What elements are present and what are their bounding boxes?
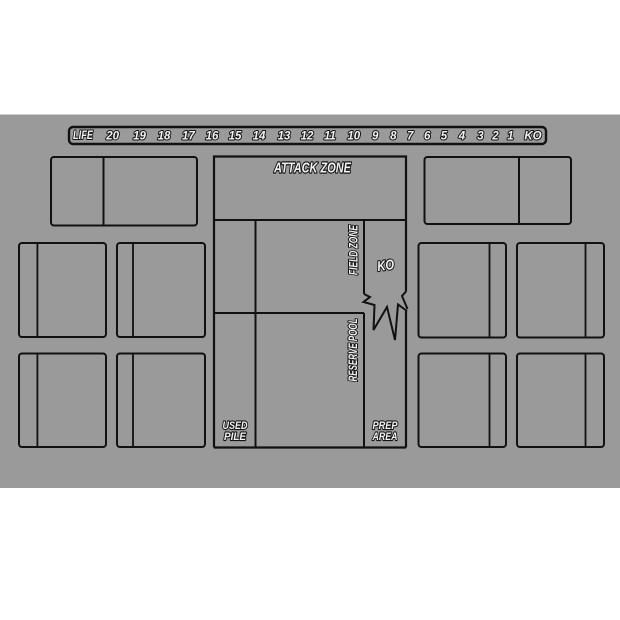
svg-text:8: 8 [390, 131, 397, 143]
svg-text:11: 11 [324, 131, 336, 143]
svg-text:13: 13 [278, 131, 291, 143]
svg-text:7: 7 [407, 131, 414, 143]
svg-text:19: 19 [133, 131, 146, 143]
svg-text:17: 17 [182, 131, 195, 143]
svg-text:9: 9 [372, 131, 379, 143]
svg-text:FIELD ZONE: FIELD ZONE [347, 224, 361, 275]
svg-text:LIFE: LIFE [73, 130, 93, 142]
svg-text:5: 5 [441, 131, 448, 143]
svg-text:14: 14 [253, 131, 266, 143]
svg-text:2: 2 [491, 131, 499, 143]
svg-text:16: 16 [206, 131, 219, 143]
svg-text:10: 10 [347, 131, 360, 143]
svg-text:ATTACK ZONE: ATTACK ZONE [273, 160, 351, 177]
svg-text:20: 20 [105, 131, 119, 143]
svg-text:12: 12 [301, 131, 314, 143]
svg-text:4: 4 [458, 131, 466, 143]
svg-text:3: 3 [477, 131, 484, 143]
svg-text:1: 1 [507, 131, 513, 143]
svg-text:15: 15 [229, 131, 242, 143]
svg-text:KO: KO [376, 256, 395, 274]
svg-text:18: 18 [158, 131, 171, 143]
svg-text:AREA: AREA [372, 431, 398, 443]
svg-text:KO: KO [524, 131, 541, 143]
svg-text:PILE: PILE [224, 431, 247, 443]
svg-text:6: 6 [424, 131, 431, 143]
svg-text:RESERVE POOL: RESERVE POOL [348, 319, 360, 382]
